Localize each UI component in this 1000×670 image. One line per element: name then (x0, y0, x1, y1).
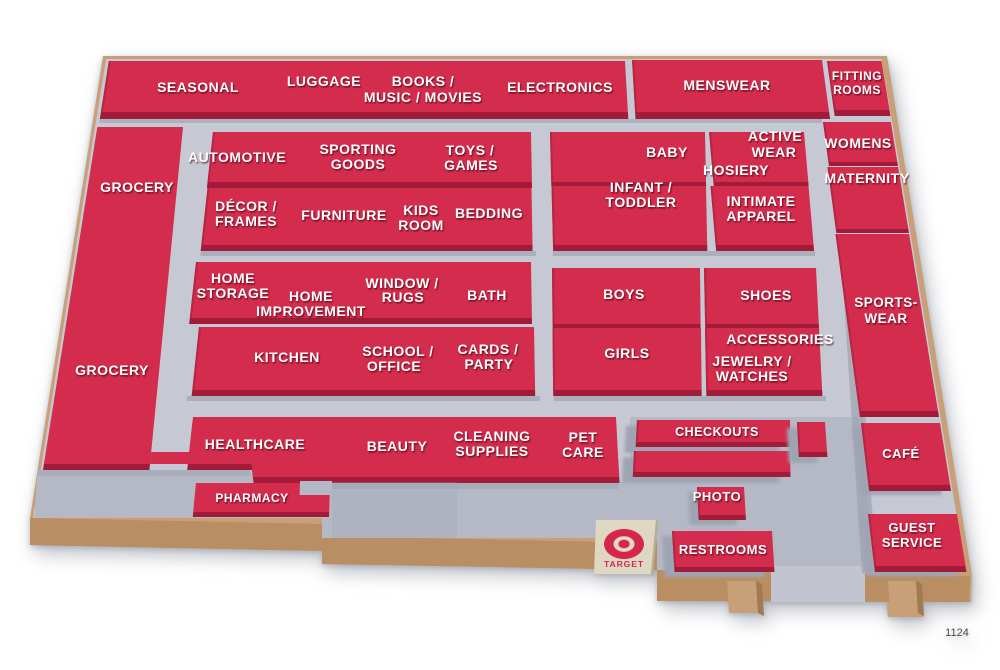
svg-text:SPORTING: SPORTING (319, 141, 396, 157)
svg-text:PHARMACY: PHARMACY (215, 491, 288, 505)
svg-text:CAFÉ: CAFÉ (882, 446, 919, 461)
svg-text:JEWELRY /: JEWELRY / (712, 353, 791, 369)
svg-text:TOYS /: TOYS / (446, 142, 495, 158)
svg-text:BOYS: BOYS (603, 286, 645, 302)
svg-text:FURNITURE: FURNITURE (301, 207, 386, 223)
svg-text:TODDLER: TODDLER (606, 194, 677, 210)
svg-text:RUGS: RUGS (382, 289, 424, 305)
svg-text:1124: 1124 (945, 627, 969, 639)
svg-text:APPAREL: APPAREL (726, 208, 795, 224)
svg-text:LUGGAGE: LUGGAGE (287, 73, 361, 89)
svg-text:BABY: BABY (646, 144, 688, 160)
svg-text:STORAGE: STORAGE (197, 285, 269, 301)
svg-text:IMPROVEMENT: IMPROVEMENT (256, 303, 366, 319)
svg-text:HOME: HOME (289, 288, 333, 304)
svg-text:TARGET: TARGET (604, 559, 644, 569)
svg-text:BEAUTY: BEAUTY (367, 438, 428, 454)
svg-text:GROCERY: GROCERY (75, 362, 149, 378)
svg-text:CLEANING: CLEANING (453, 428, 530, 444)
svg-text:GAMES: GAMES (444, 157, 498, 173)
svg-text:ROOMS: ROOMS (833, 83, 881, 97)
svg-text:SHOES: SHOES (740, 287, 792, 303)
svg-text:GUEST: GUEST (888, 520, 935, 535)
svg-text:PET: PET (569, 429, 598, 445)
svg-text:SCHOOL /: SCHOOL / (362, 343, 433, 359)
svg-text:PARTY: PARTY (465, 356, 514, 372)
svg-text:GROCERY: GROCERY (100, 179, 174, 195)
svg-text:RESTROOMS: RESTROOMS (679, 542, 767, 557)
svg-text:INFANT /: INFANT / (610, 179, 672, 195)
svg-text:KITCHEN: KITCHEN (254, 349, 320, 365)
svg-text:BEDDING: BEDDING (455, 205, 523, 221)
svg-text:WEAR: WEAR (864, 311, 907, 326)
svg-text:HEALTHCARE: HEALTHCARE (205, 436, 305, 452)
svg-text:AUTOMOTIVE: AUTOMOTIVE (188, 149, 286, 165)
svg-text:SUPPLIES: SUPPLIES (455, 443, 528, 459)
svg-text:CARDS /: CARDS / (457, 341, 518, 357)
svg-text:ELECTRONICS: ELECTRONICS (507, 79, 613, 95)
svg-text:ROOM: ROOM (398, 217, 444, 233)
svg-text:GOODS: GOODS (331, 156, 386, 172)
svg-text:OFFICE: OFFICE (367, 358, 421, 374)
svg-text:ACTIVE: ACTIVE (748, 128, 802, 144)
svg-text:SEASONAL: SEASONAL (157, 79, 239, 95)
svg-text:HOME: HOME (211, 270, 255, 286)
svg-text:DÉCOR /: DÉCOR / (215, 198, 277, 214)
svg-text:WOMENS: WOMENS (824, 135, 892, 151)
svg-text:SPORTS-: SPORTS- (854, 295, 918, 310)
svg-text:PHOTO: PHOTO (693, 489, 742, 504)
svg-text:FRAMES: FRAMES (215, 213, 277, 229)
svg-text:CARE: CARE (562, 444, 604, 460)
svg-text:HOSIERY: HOSIERY (703, 162, 769, 178)
svg-text:FITTING: FITTING (832, 69, 882, 83)
svg-text:MENSWEAR: MENSWEAR (683, 77, 770, 93)
svg-text:BOOKS /: BOOKS / (392, 73, 455, 89)
svg-text:ACCESSORIES: ACCESSORIES (726, 331, 833, 347)
svg-text:MATERNITY: MATERNITY (824, 170, 909, 186)
svg-text:SERVICE: SERVICE (882, 535, 942, 550)
svg-text:WATCHES: WATCHES (716, 368, 788, 384)
svg-text:KIDS: KIDS (403, 202, 438, 218)
svg-text:INTIMATE: INTIMATE (726, 193, 795, 209)
svg-text:GIRLS: GIRLS (604, 345, 649, 361)
svg-text:MUSIC / MOVIES: MUSIC / MOVIES (364, 89, 482, 105)
svg-text:BATH: BATH (467, 287, 507, 303)
svg-text:WEAR: WEAR (752, 144, 797, 160)
svg-text:CHECKOUTS: CHECKOUTS (675, 425, 759, 439)
